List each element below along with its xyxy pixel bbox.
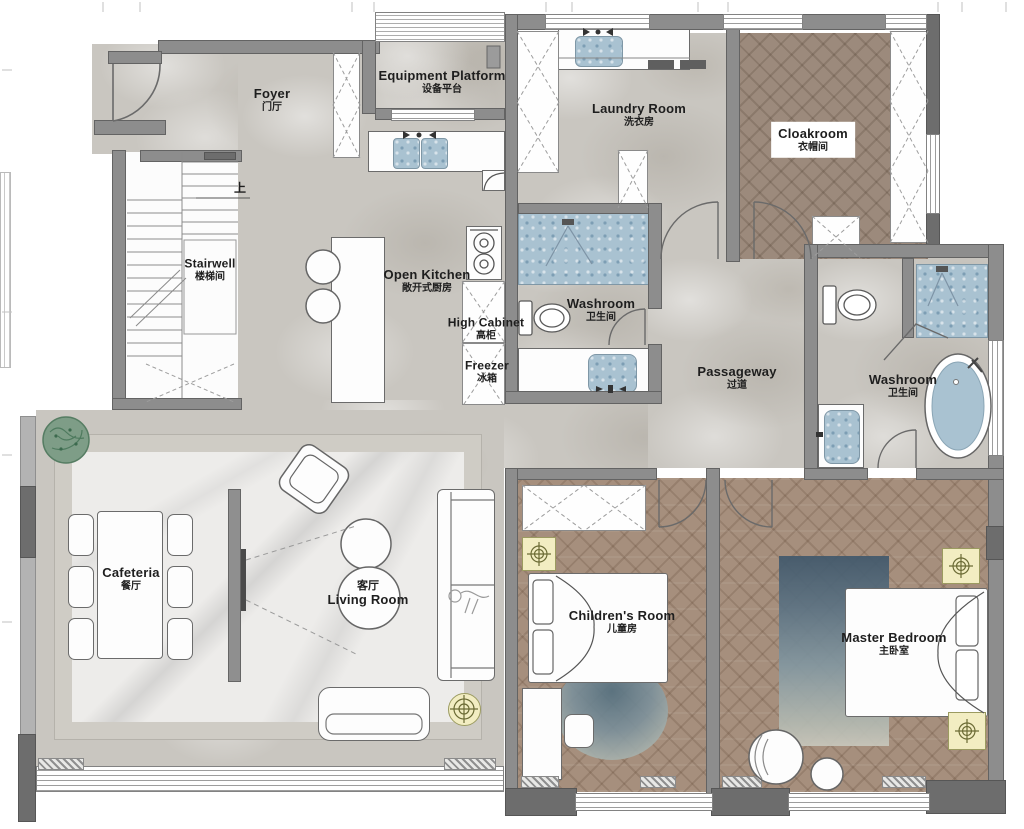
radiator-hatch <box>444 758 496 770</box>
window <box>723 14 803 30</box>
label-foyer: Foyer门厅 <box>254 87 290 113</box>
dining-chair <box>167 618 193 660</box>
wall <box>804 468 868 480</box>
wall <box>20 416 36 768</box>
wall <box>505 468 657 480</box>
wall <box>926 780 1006 814</box>
master-nightstand-lamp-bottom <box>948 712 986 750</box>
wall <box>505 788 577 816</box>
window <box>885 14 927 30</box>
window <box>545 14 650 30</box>
label-laundry-room: Laundry Room洗衣房 <box>592 102 686 128</box>
wall <box>988 244 1004 804</box>
cloakroom-wardrobe <box>890 31 928 243</box>
radiator-hatch <box>521 776 559 788</box>
wall <box>726 14 740 262</box>
label-freezer: Freezer冰箱 <box>465 359 509 384</box>
wall <box>158 40 380 54</box>
kitchen-island <box>331 237 385 403</box>
window <box>988 340 1004 456</box>
wall <box>518 203 650 214</box>
washroom-mid-basin <box>588 354 637 393</box>
floor-lamp <box>448 693 481 726</box>
wall <box>916 468 1004 480</box>
label-open-kitchen: Open Kitchen敞开式厨房 <box>384 268 471 294</box>
wall <box>20 486 36 558</box>
wall <box>112 398 242 410</box>
childrens-nightstand-lamp <box>522 537 556 571</box>
radiator-hatch <box>38 758 84 770</box>
window <box>926 134 940 214</box>
wall <box>986 526 1004 560</box>
wall <box>711 788 790 816</box>
wall <box>505 391 662 404</box>
kitchen-sink-left <box>393 138 420 169</box>
kitchen-corner-unit <box>482 170 505 191</box>
shower-ensuite <box>916 264 988 338</box>
label-passageway: Passageway过道 <box>697 365 776 391</box>
stove <box>466 226 502 280</box>
label-master-bedroom: Master Bedroom主卧室 <box>841 631 946 657</box>
window <box>788 793 930 811</box>
dining-chair <box>167 514 193 556</box>
label-stairwell: Stairwell楼梯间 <box>184 257 235 282</box>
wall <box>902 258 914 338</box>
childrens-desk <box>522 688 562 780</box>
kitchen-sink-right <box>421 138 448 169</box>
tv-screen <box>241 549 246 611</box>
wall <box>362 40 376 114</box>
label-high-cabinet: High Cabinet高柜 <box>448 316 524 341</box>
label-washroom-middle: Washroom卫生间 <box>567 297 635 323</box>
wall <box>108 51 162 64</box>
dining-chair <box>68 618 94 660</box>
living-bench <box>318 687 430 741</box>
window <box>391 109 475 121</box>
master-nightstand-lamp-top <box>942 548 980 584</box>
foyer-shoe-cabinet <box>333 52 360 158</box>
balcony-window <box>36 766 504 792</box>
wall <box>804 244 1004 258</box>
laundry-sink <box>575 36 623 67</box>
wall <box>706 468 720 803</box>
shower-mid <box>518 213 652 285</box>
sofa <box>437 489 495 681</box>
wall <box>94 120 166 135</box>
radiator-hatch <box>640 776 676 788</box>
wall <box>18 734 36 822</box>
radiator-hatch <box>722 776 762 788</box>
dining-chair <box>167 566 193 608</box>
wall <box>648 203 662 309</box>
radiator-hatch <box>882 776 926 788</box>
window <box>575 793 713 811</box>
equipment-platform-vent <box>375 12 505 42</box>
label-equipment-platform: Equipment Platform设备平台 <box>378 69 505 95</box>
laundry-cabinet-corner <box>618 150 648 208</box>
wall <box>926 14 940 136</box>
threshold <box>204 152 236 160</box>
wall <box>804 244 818 480</box>
floor-plan-canvas: Foyer门厅 Equipment Platform设备平台 Laundry R… <box>0 0 1024 829</box>
label-living-room: 客厅Living Room <box>328 580 409 608</box>
childrens-desk-chair <box>564 714 594 748</box>
dining-chair <box>68 514 94 556</box>
label-cafeteria: Cafeteria餐厅 <box>102 566 159 592</box>
window <box>0 172 11 368</box>
childrens-wardrobe <box>522 485 646 531</box>
washroom-ensuite-basin <box>824 410 860 464</box>
laundry-cabinet-left <box>517 31 559 173</box>
wall <box>112 150 126 402</box>
label-cloakroom: Cloakroom衣帽间 <box>771 122 855 158</box>
tv-panel <box>228 489 241 682</box>
wall <box>505 468 518 803</box>
label-stairs-up: 上 <box>234 182 246 196</box>
label-childrens-room: Children's Room儿童房 <box>569 609 676 635</box>
dining-chair <box>68 566 94 608</box>
label-washroom-ensuite: Washroom卫生间 <box>869 373 937 399</box>
